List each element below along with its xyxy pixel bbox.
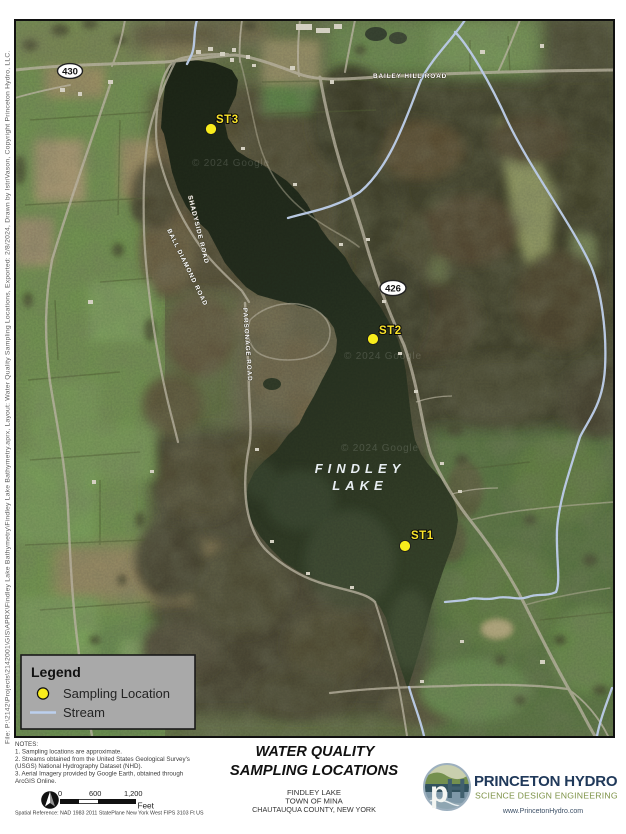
svg-text:LAKE: LAKE bbox=[332, 478, 387, 493]
svg-text:Feet: Feet bbox=[138, 802, 155, 811]
svg-text:SCIENCE DESIGN ENGINEERING: SCIENCE DESIGN ENGINEERING bbox=[475, 791, 618, 801]
svg-text:CHAUTAUQUA COUNTY, NEW YORK: CHAUTAUQUA COUNTY, NEW YORK bbox=[252, 805, 376, 814]
svg-text:Legend: Legend bbox=[31, 664, 81, 680]
svg-text:WATER QUALITY: WATER QUALITY bbox=[256, 744, 376, 760]
svg-text:430: 430 bbox=[62, 66, 78, 77]
svg-text:H: H bbox=[446, 773, 466, 804]
svg-text:ST1: ST1 bbox=[411, 530, 434, 542]
svg-text:(USGS) National Hydrography Da: (USGS) National Hydrography Dataset (NHD… bbox=[15, 763, 143, 770]
svg-text:Spatial Reference: NAD 1983 20: Spatial Reference: NAD 1983 2011 StatePl… bbox=[15, 811, 204, 817]
svg-text:NOTES:: NOTES: bbox=[15, 741, 38, 748]
svg-text:1. Sampling locations are appr: 1. Sampling locations are approximate. bbox=[15, 748, 122, 755]
svg-text:FINDLEY: FINDLEY bbox=[315, 461, 406, 476]
svg-text:0: 0 bbox=[58, 789, 62, 798]
svg-text:2. Streams obtained from the U: 2. Streams obtained from the United Stat… bbox=[15, 756, 190, 763]
svg-text:1,200: 1,200 bbox=[124, 789, 143, 798]
svg-text:ST3: ST3 bbox=[216, 114, 239, 126]
svg-text:File: P:\2142\Projects\2142001: File: P:\2142\Projects\2142001\GIS\APRX\… bbox=[5, 50, 12, 744]
svg-text:426: 426 bbox=[385, 284, 401, 295]
svg-text:ST2: ST2 bbox=[379, 325, 402, 337]
svg-text:3. Aerial Imagery provided by: 3. Aerial Imagery provided by Google Ear… bbox=[15, 771, 184, 778]
svg-text:Sampling Location: Sampling Location bbox=[63, 686, 170, 701]
svg-text:600: 600 bbox=[89, 789, 101, 798]
svg-text:SAMPLING LOCATIONS: SAMPLING LOCATIONS bbox=[230, 763, 398, 779]
svg-text:ArcGIS Online.: ArcGIS Online. bbox=[15, 778, 57, 785]
svg-text:PRINCETON HYDRO: PRINCETON HYDRO bbox=[474, 773, 618, 790]
svg-text:BAILEY HILL ROAD: BAILEY HILL ROAD bbox=[373, 73, 447, 80]
svg-text:www.PrincetonHydro.com: www.PrincetonHydro.com bbox=[502, 808, 583, 815]
svg-text:Stream: Stream bbox=[63, 705, 105, 720]
